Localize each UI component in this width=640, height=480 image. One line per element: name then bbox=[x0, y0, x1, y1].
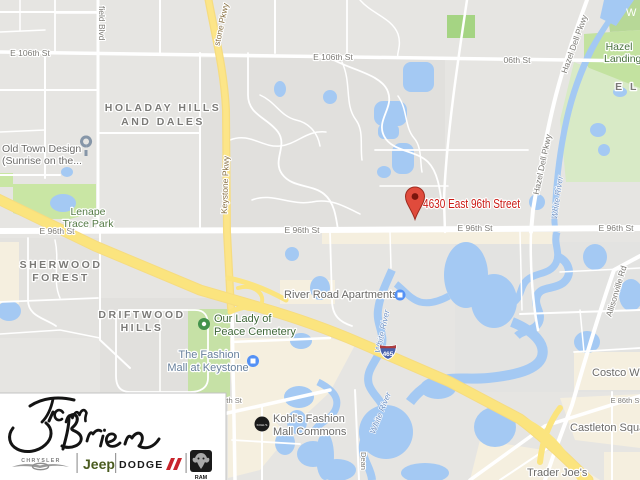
svg-text:Hazel: Hazel bbox=[606, 41, 633, 53]
svg-text:E 86th St: E 86th St bbox=[611, 396, 640, 405]
svg-text:E 96th St: E 96th St bbox=[599, 223, 635, 233]
svg-text:Mall Commons: Mall Commons bbox=[273, 426, 347, 438]
svg-text:Dean: Dean bbox=[359, 452, 368, 470]
svg-text:Trace Park: Trace Park bbox=[63, 218, 115, 230]
svg-text:06th St: 06th St bbox=[504, 55, 532, 65]
svg-text:Landing Park: Landing Park bbox=[604, 53, 640, 65]
svg-text:E 96th St: E 96th St bbox=[285, 225, 321, 235]
svg-text:(Sunrise on the...: (Sunrise on the... bbox=[2, 155, 82, 167]
svg-text:4630 East 96th Street: 4630 East 96th Street bbox=[423, 197, 520, 211]
svg-text:SHERWOOD: SHERWOOD bbox=[20, 259, 103, 271]
svg-text:Castleton Squar: Castleton Squar bbox=[570, 422, 640, 434]
svg-text:Trader Joe's: Trader Joe's bbox=[527, 467, 588, 479]
svg-text:E 96th St: E 96th St bbox=[458, 223, 494, 233]
svg-text:E 106th St: E 106th St bbox=[10, 48, 50, 58]
svg-text:Peace Cemetery: Peace Cemetery bbox=[214, 326, 296, 338]
svg-text:W: W bbox=[626, 7, 637, 19]
svg-text:FOREST: FOREST bbox=[32, 272, 90, 284]
svg-text:AND DALES: AND DALES bbox=[121, 116, 205, 128]
svg-text:Old Town Design: Old Town Design bbox=[2, 143, 81, 155]
svg-text:RAM: RAM bbox=[195, 475, 208, 480]
svg-text:River Road Apartments: River Road Apartments bbox=[284, 289, 398, 301]
svg-text:field Blvd: field Blvd bbox=[97, 6, 107, 41]
svg-text:Our Lady of: Our Lady of bbox=[214, 313, 272, 325]
svg-text:DRIFTWOOD: DRIFTWOOD bbox=[98, 309, 185, 321]
svg-text:Jeep: Jeep bbox=[83, 456, 115, 472]
svg-text:Keystone Pkwy: Keystone Pkwy bbox=[219, 155, 231, 214]
svg-text:Mall at Keystone: Mall at Keystone bbox=[167, 362, 248, 374]
svg-text:HOLADAY HILLS: HOLADAY HILLS bbox=[105, 102, 222, 114]
svg-text:Lenape: Lenape bbox=[70, 206, 105, 218]
svg-text:HILLS: HILLS bbox=[121, 322, 164, 334]
svg-text:The Fashion: The Fashion bbox=[178, 349, 239, 361]
svg-text:Kohl's Fashion: Kohl's Fashion bbox=[273, 413, 345, 425]
svg-text:E 106th St: E 106th St bbox=[313, 52, 353, 62]
svg-text:Costco Wh: Costco Wh bbox=[592, 367, 640, 379]
svg-text:DODGE: DODGE bbox=[119, 459, 164, 471]
svg-text:465: 465 bbox=[383, 351, 394, 358]
svg-text:E L: E L bbox=[615, 81, 639, 93]
svg-text:KOHL'S: KOHL'S bbox=[257, 423, 268, 427]
